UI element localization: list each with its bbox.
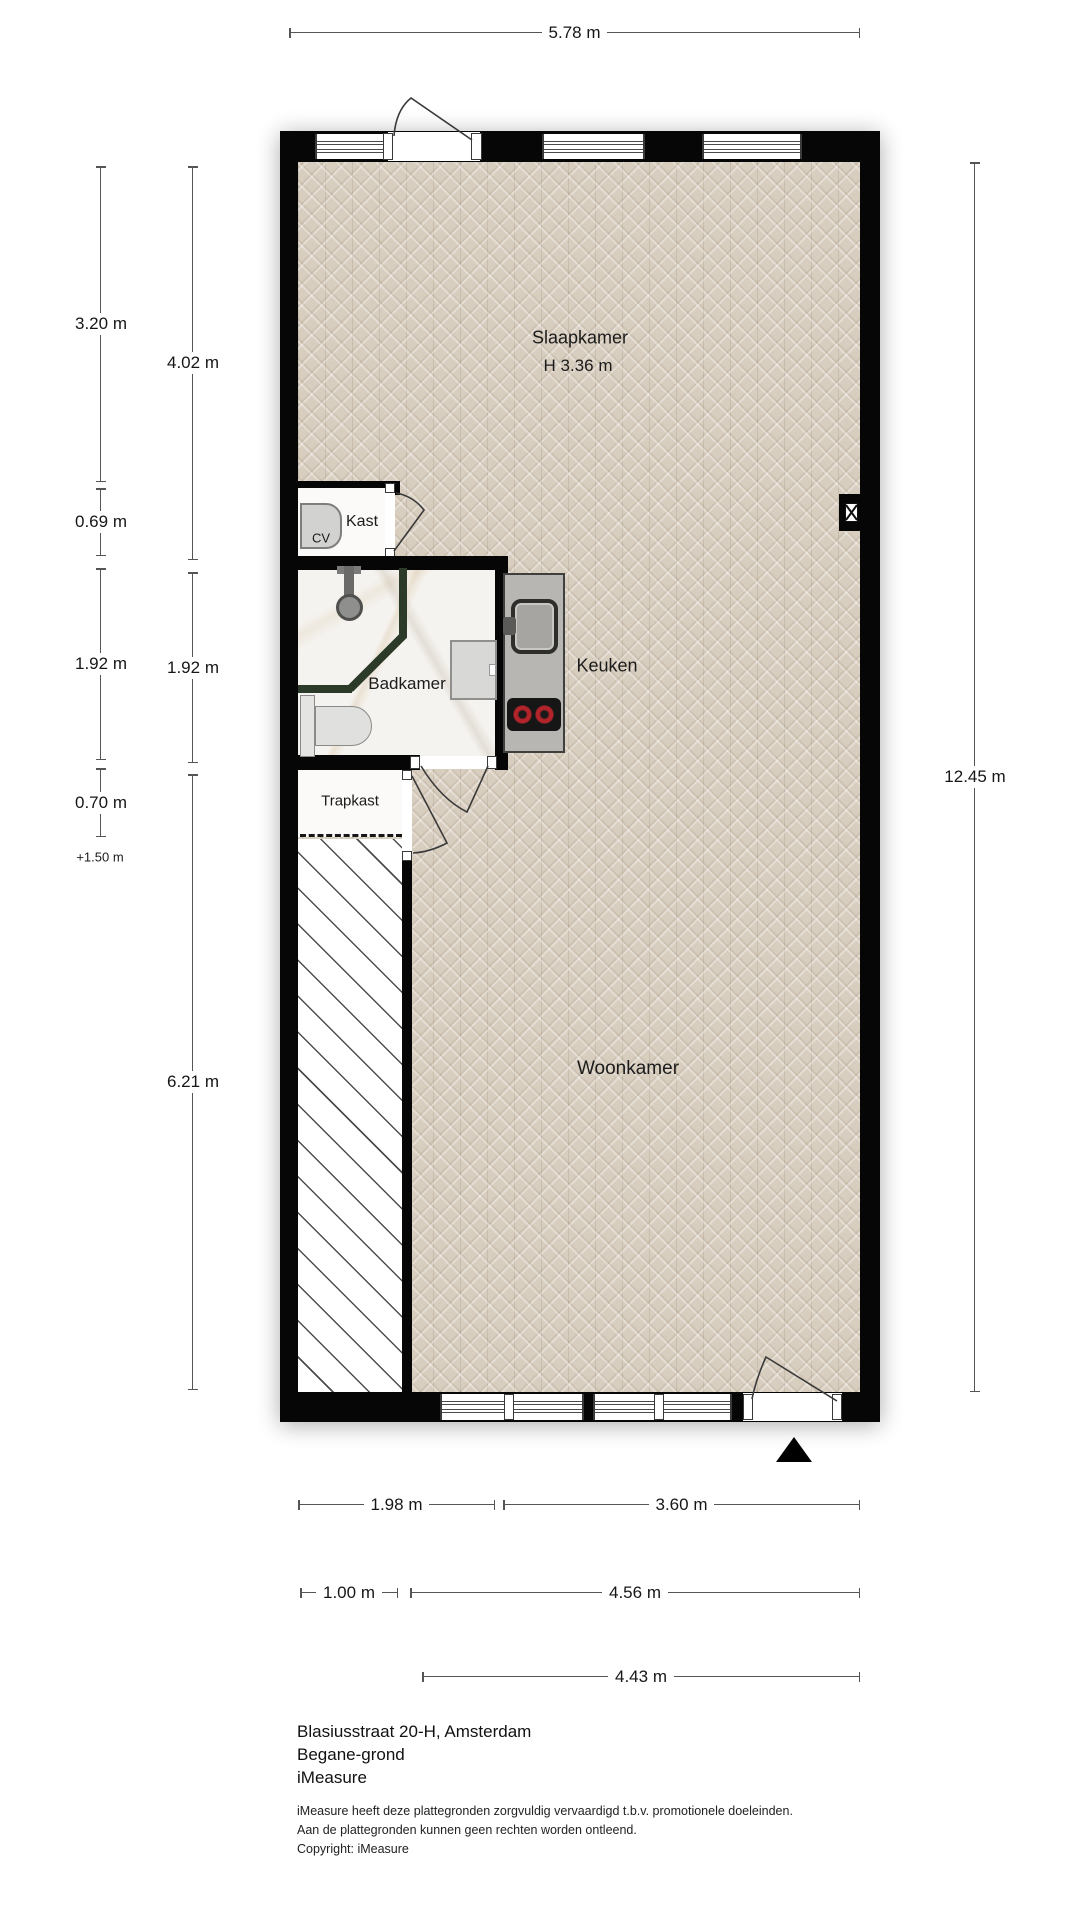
kast-door-frame-top — [385, 483, 395, 493]
dim-left-outer-1: 3.20 m — [100, 166, 101, 482]
dim-label: 4.56 m — [602, 1582, 668, 1604]
wall-badkamer-south — [280, 755, 420, 770]
window-bottom-1-mullion — [504, 1394, 514, 1420]
dim-bottom-row2-a: 1.00 m — [300, 1592, 398, 1593]
shower-head-icon — [336, 594, 363, 621]
footer-copyright: Copyright: iMeasure — [297, 1840, 793, 1859]
footer-brand: iMeasure — [297, 1766, 793, 1789]
room-label-keuken: Keuken — [576, 656, 637, 677]
dim-label: 1.98 m — [364, 1494, 430, 1516]
room-label-woonkamer: Woonkamer — [577, 1058, 679, 1080]
trapkast-door-frame-bottom — [402, 851, 412, 861]
floorplan-page: Slaapkamer H 3.36 m Kast CV Badkamer Keu… — [0, 0, 1080, 1920]
dim-label: 4.02 m — [160, 352, 226, 374]
badkamer-door-frame-right — [487, 756, 497, 769]
window-bottom-2-mullion — [654, 1394, 664, 1420]
dim-right-label: 12.45 m — [937, 766, 1012, 788]
footer-disclaimer-1: iMeasure heeft deze plattegronden zorgvu… — [297, 1802, 793, 1821]
dim-label: 0.69 m — [68, 511, 134, 533]
dim-label: 3.20 m — [68, 313, 134, 335]
dim-label: 3.60 m — [649, 1494, 715, 1516]
wall-right — [860, 131, 880, 1422]
stairwell-hatch-area — [298, 839, 402, 1392]
dim-left-inner-1: 4.02 m — [192, 166, 193, 560]
dim-bottom-row1-a: 1.98 m — [298, 1504, 495, 1505]
door-top-frame-right — [471, 133, 482, 160]
kitchen-sink — [511, 599, 558, 654]
room-label-cv: CV — [312, 531, 330, 546]
dim-left-outer-4: 0.70 m — [100, 768, 101, 837]
footer-address: Blasiusstraat 20-H, Amsterdam — [297, 1720, 793, 1743]
footer-disclaimer-2: Aan de plattegronden kunnen geen rechten… — [297, 1821, 793, 1840]
kast-door-opening — [385, 483, 395, 558]
badkamer-door-frame-left — [410, 756, 420, 769]
wall-stairwell-east — [402, 861, 412, 1392]
toilet-tank — [300, 695, 315, 757]
toilet-bowl — [315, 706, 372, 746]
dim-bottom-row2-b: 4.56 m — [410, 1592, 860, 1593]
level-change-dashed-line — [300, 834, 402, 837]
door-top-frame-left — [383, 133, 393, 160]
dim-right: 12.45 m — [974, 162, 975, 1392]
dim-left-outer-2: 0.69 m — [100, 488, 101, 556]
window-top-2 — [542, 134, 645, 159]
trapkast-door-opening — [402, 770, 412, 861]
wall-left — [280, 131, 298, 1422]
dim-bottom-row1-b: 3.60 m — [503, 1504, 860, 1505]
dim-label: 4.43 m — [608, 1666, 674, 1688]
room-label-kast: Kast — [346, 513, 378, 531]
dim-label: 1.92 m — [68, 653, 134, 675]
badkamer-door-opening — [420, 756, 487, 769]
door-bottom-frame-left — [743, 1394, 753, 1420]
kitchen-faucet-icon — [503, 617, 516, 635]
door-top-opening — [388, 132, 480, 161]
dim-top: 5.78 m — [289, 32, 860, 33]
dim-top-label: 5.78 m — [542, 22, 608, 44]
trapkast-door-frame-top — [402, 770, 412, 780]
vent-shaft-icon — [845, 503, 858, 522]
dim-bottom-row3: 4.43 m — [422, 1676, 860, 1677]
dim-level-label: +1.50 m — [72, 849, 127, 866]
footer-floor: Begane-grond — [297, 1743, 793, 1766]
north-arrow-icon — [776, 1437, 812, 1462]
window-top-3 — [702, 134, 802, 159]
room-label-trapkast: Trapkast — [321, 793, 379, 810]
dim-left-inner-2: 1.92 m — [192, 572, 193, 763]
footer: Blasiusstraat 20-H, Amsterdam Begane-gro… — [297, 1720, 793, 1859]
burner-right-icon — [535, 705, 554, 724]
dim-label: 1.00 m — [316, 1582, 382, 1604]
washer-handle — [489, 664, 496, 676]
dim-left-outer-3: 1.92 m — [100, 568, 101, 760]
dim-left-inner-3: 6.21 m — [192, 774, 193, 1390]
room-ceiling-height: H 3.36 m — [544, 356, 613, 376]
dim-label: 1.92 m — [160, 657, 226, 679]
burner-left-icon — [513, 705, 532, 724]
shower-wall-vertical — [399, 568, 407, 638]
dim-label: 0.70 m — [68, 792, 134, 814]
dim-label: 6.21 m — [160, 1071, 226, 1093]
door-bottom-opening — [743, 1393, 842, 1421]
room-label-slaapkamer: Slaapkamer — [532, 328, 628, 349]
room-label-badkamer: Badkamer — [368, 674, 445, 694]
shower-wall-horizontal — [298, 685, 352, 693]
door-bottom-frame-right — [832, 1394, 842, 1420]
